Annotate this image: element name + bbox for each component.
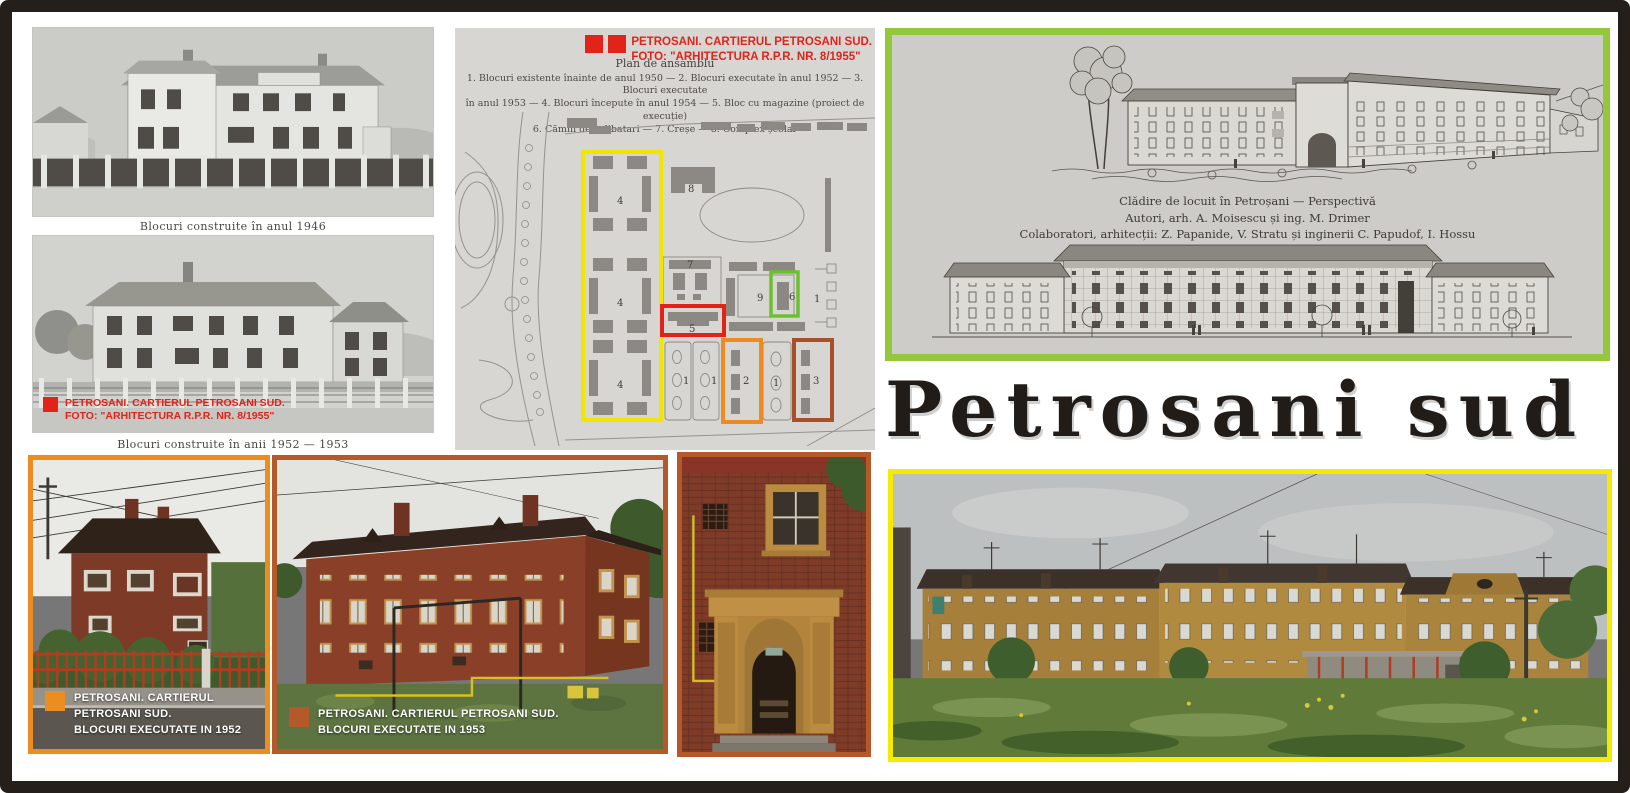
- orange-swatch-icon: [45, 691, 65, 711]
- marker-1b: 1: [711, 376, 717, 387]
- poster-title: Petrosani sud: [885, 368, 1585, 452]
- drawing-caption: Clădire de locuit în Petroșani — Perspec…: [892, 193, 1603, 243]
- caption-1946: Blocuri construite în anul 1946: [33, 220, 433, 233]
- photo-1953-label-line2: BLOCURI EXECUTATE IN 1953: [318, 723, 559, 739]
- site-plan-map: 4 4 4 8 7 9 6 5 1 1 1 1 2 3: [455, 112, 875, 446]
- photo-1952-label-line1: PETROSANI. CARTIERUL PETROSANI SUD.: [74, 691, 265, 723]
- marker-4a: 4: [617, 196, 623, 207]
- marker-1c: 1: [773, 378, 779, 389]
- marker-9: 9: [757, 293, 763, 304]
- marker-4c: 4: [617, 380, 623, 391]
- marker-2: 2: [743, 376, 749, 387]
- red-swatch-icon: [43, 397, 58, 412]
- plan-legend-line: 1. Blocuri existente înainte de anul 195…: [455, 73, 875, 99]
- photo-1952-label: PETROSANI. CARTIERUL PETROSANI SUD. BLOC…: [45, 691, 265, 739]
- marker-1d: 1: [814, 294, 820, 305]
- plan-legend-title: Plan de ansamblu: [455, 56, 875, 73]
- photo-1953-label: PETROSANI. CARTIERUL PETROSANI SUD. BLOC…: [289, 707, 559, 739]
- drawing-caption-line2: Autori, arh. A. Moisescu și ing. M. Drim…: [892, 210, 1603, 227]
- tree: [1070, 46, 1132, 169]
- credit-line2: FOTO: "ARHITECTURA R.P.R. NR. 8/1955": [65, 410, 285, 424]
- drawing-caption-line1: Clădire de locuit în Petroșani — Perspec…: [892, 193, 1603, 210]
- ochre-blocks-illustration: [893, 474, 1607, 757]
- marker-5: 5: [689, 324, 695, 335]
- marker-7: 7: [687, 260, 693, 271]
- photo-1953-label-line1: PETROSANI. CARTIERUL PETROSANI SUD.: [318, 707, 559, 723]
- site-plan-panel: PETROSANI. CARTIERUL PETROSANI SUD. FOTO…: [455, 28, 875, 450]
- photo-modern-blocks-wide: [888, 469, 1612, 762]
- photo-blocks-built-1952: PETROSANI. CARTIERUL PETROSANI SUD. BLOC…: [28, 455, 270, 754]
- photo-blocks-1946: [33, 28, 433, 216]
- poster: Blocuri construite în anul 1946: [0, 0, 1630, 793]
- plan-trees: [521, 145, 544, 416]
- caption-1952-1953: Blocuri construite în anii 1952 — 1953: [33, 438, 433, 451]
- plan-credit-line1: PETROSANI. CARTIERUL PETROSANI SUD.: [631, 35, 872, 50]
- perspective-drawing: [892, 39, 1603, 189]
- archive-photos-panel: Blocuri construite în anul 1946: [33, 28, 433, 468]
- marker-8: 8: [688, 184, 694, 195]
- red-swatch-icon: [608, 35, 626, 53]
- archive-photo-credit: PETROSANI. CARTIERUL PETROSANI SUD. FOTO…: [43, 397, 285, 424]
- brick-block-1953-illustration: [277, 460, 663, 749]
- red-swatch-icon: [585, 35, 603, 53]
- brown-swatch-icon: [289, 707, 309, 727]
- marker-3: 3: [813, 376, 819, 387]
- credit-line1: PETROSANI. CARTIERUL PETROSANI SUD.: [65, 397, 285, 411]
- photo-entrance-portal: [677, 452, 871, 757]
- elevation-drawing: [892, 241, 1603, 345]
- photo-blocks-built-1953: PETROSANI. CARTIERUL PETROSANI SUD. BLOC…: [272, 455, 668, 754]
- photo-blocks-1952-1953: PETROSANI. CARTIERUL PETROSANI SUD. FOTO…: [33, 236, 433, 432]
- architectural-drawings-panel: Clădire de locuit în Petroșani — Perspec…: [885, 28, 1610, 361]
- entrance-portal-illustration: [682, 457, 866, 752]
- plan-buildings: [567, 118, 867, 415]
- photo-1952-label-line2: BLOCURI EXECUTATE IN 1952: [74, 723, 265, 739]
- marker-4b: 4: [617, 298, 623, 309]
- marker-1a: 1: [683, 376, 689, 387]
- marker-6: 6: [789, 292, 795, 303]
- villa-1946-illustration: [33, 28, 433, 216]
- orange-highlight-frame: [723, 340, 761, 422]
